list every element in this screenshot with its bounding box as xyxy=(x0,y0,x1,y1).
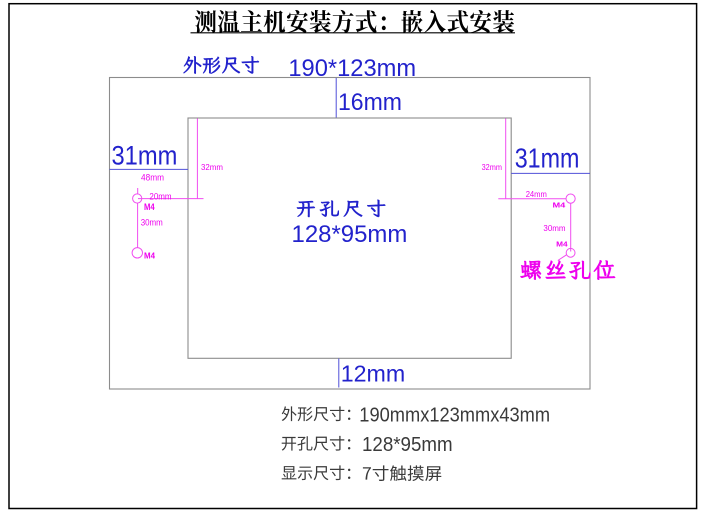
svg-text:30mm: 30mm xyxy=(141,217,163,227)
svg-text:20mm: 20mm xyxy=(149,191,171,201)
svg-text:32mm: 32mm xyxy=(482,162,502,172)
svg-text:32mm: 32mm xyxy=(201,162,223,172)
svg-text:M4: M4 xyxy=(556,242,568,249)
svg-text:190mmx123mmx43mm: 190mmx123mmx43mm xyxy=(359,404,550,426)
svg-text:48mm: 48mm xyxy=(141,172,164,182)
svg-text:24mm: 24mm xyxy=(526,190,548,199)
svg-text:128*95mm: 128*95mm xyxy=(292,221,408,248)
svg-text:M4: M4 xyxy=(144,202,155,212)
svg-text:M4: M4 xyxy=(144,250,155,260)
svg-text:12mm: 12mm xyxy=(341,361,406,387)
svg-text:31mm: 31mm xyxy=(515,143,580,174)
svg-text:M4: M4 xyxy=(553,201,567,210)
svg-text:128*95mm: 128*95mm xyxy=(362,434,453,456)
svg-text:31mm: 31mm xyxy=(112,139,178,170)
svg-text:190*123mm: 190*123mm xyxy=(288,55,416,82)
svg-text:16mm: 16mm xyxy=(338,90,402,116)
svg-text:30mm: 30mm xyxy=(543,224,566,233)
